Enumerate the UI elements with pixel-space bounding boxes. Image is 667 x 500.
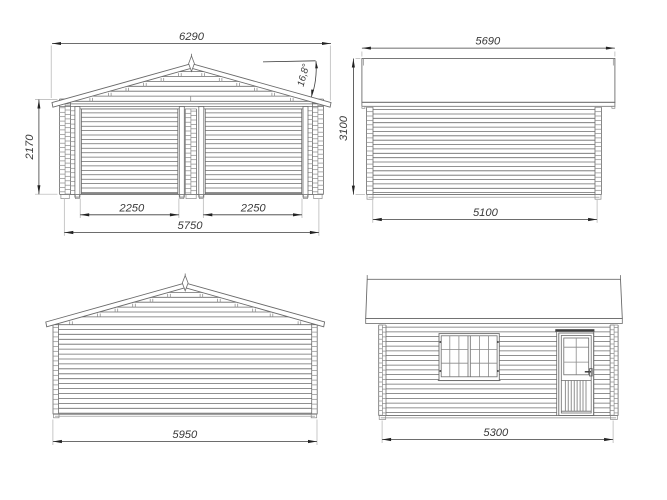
svg-text:6290: 6290 [179,31,205,43]
svg-text:2250: 2250 [118,202,145,214]
svg-text:5100: 5100 [473,207,499,219]
svg-text:3100: 3100 [338,115,350,141]
svg-text:5300: 5300 [483,427,509,439]
svg-text:5950: 5950 [172,429,198,441]
svg-text:2250: 2250 [240,202,267,214]
svg-text:2170: 2170 [24,134,36,161]
svg-text:5690: 5690 [475,35,501,47]
svg-text:5750: 5750 [178,220,204,232]
